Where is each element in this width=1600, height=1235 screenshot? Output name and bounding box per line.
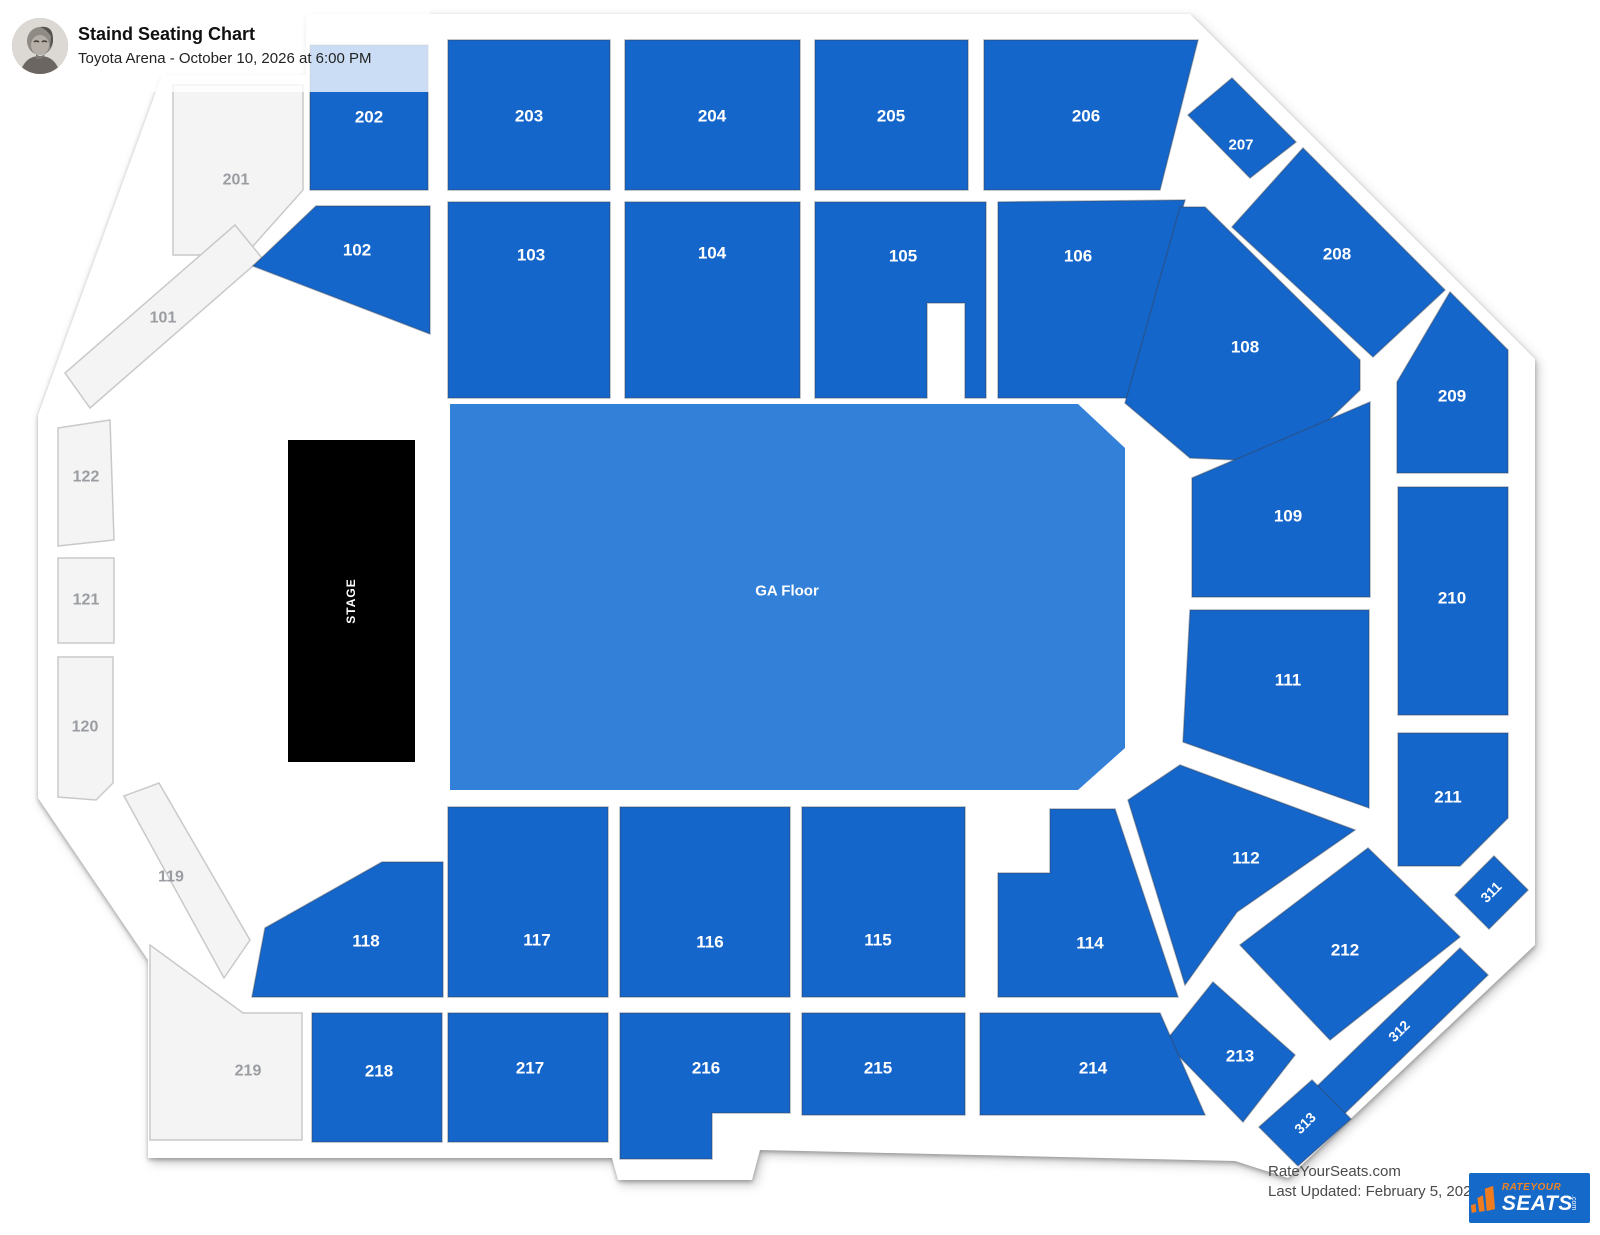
section-stage [288,440,415,762]
footer-site-line: RateYourSeats.com [1268,1162,1480,1182]
section-218[interactable] [312,1013,442,1142]
footer-updated-line: Last Updated: February 5, 2026 [1268,1182,1480,1202]
section-103[interactable] [448,202,610,398]
artist-avatar-image [12,18,68,74]
section-117[interactable] [448,807,608,997]
section-205[interactable] [815,40,968,190]
section-120 [58,657,113,800]
section-121 [58,558,114,643]
footer-credit: RateYourSeats.com Last Updated: February… [1268,1162,1480,1202]
section-217[interactable] [448,1013,608,1142]
section-210[interactable] [1398,487,1508,715]
logo-seats-text: SEATS [1502,1193,1573,1214]
section-116[interactable] [620,807,790,997]
section-203[interactable] [448,40,610,190]
section-206[interactable] [984,40,1198,190]
logo-rateyour-text: RATEYOUR [1502,1183,1590,1193]
logo-bars-icon [1469,1180,1497,1216]
chart-header: Staind Seating Chart Toyota Arena - Octo… [0,0,430,92]
section-122 [58,420,114,546]
section-ga-floor[interactable] [450,404,1125,790]
artist-avatar [12,18,68,74]
seating-map: 2011011221211201192192022032042052062072… [0,0,1600,1235]
page-title: Staind Seating Chart [78,23,372,46]
logo-com-text: .com [1570,1195,1577,1210]
section-204[interactable] [625,40,800,190]
section-215[interactable] [802,1013,965,1115]
rateyourseats-logo[interactable]: RATEYOUR SEATS .com [1469,1173,1590,1223]
logo-text: RATEYOUR SEATS .com [1502,1183,1590,1214]
event-subtitle: Toyota Arena - October 10, 2026 at 6:00 … [78,50,372,69]
section-104[interactable] [625,202,800,398]
section-115[interactable] [802,807,965,997]
